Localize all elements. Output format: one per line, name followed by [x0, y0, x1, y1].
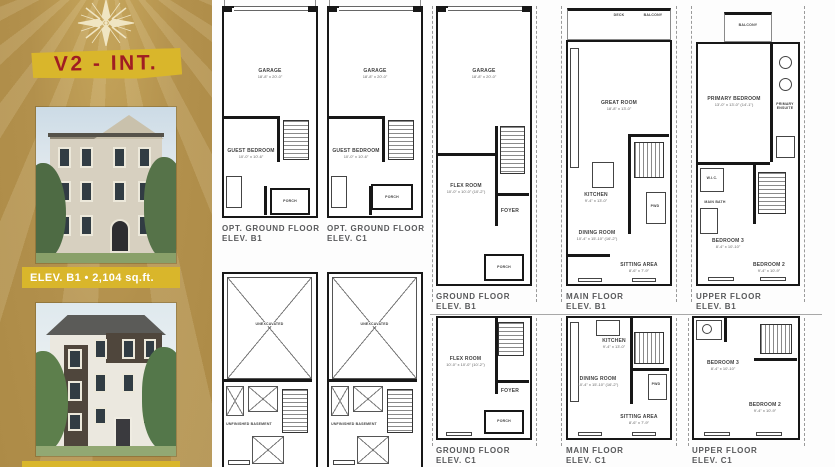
room-label-porch: PORCH	[272, 199, 308, 203]
plan-label-upper-c1: UPPER FLOORELEV. C1	[692, 446, 757, 467]
window-well	[333, 460, 355, 465]
room-label-bedroom-3: BEDROOM 38'-4" x 10'-10"	[702, 238, 754, 249]
room-label-dining-room: DINING ROOM10'-4" x 15'-10" (16'-2")	[568, 230, 626, 241]
lot-line	[688, 318, 689, 446]
tree	[144, 157, 176, 259]
stairs	[282, 389, 308, 433]
model-title-band: V2 - INT.	[30, 48, 182, 80]
plan-label-ground-b1: GROUND FLOORELEV. B1	[436, 292, 510, 313]
room-label-unexcavated: UNEXCAVATED	[227, 322, 312, 326]
room-label-unexcavated: UNEXCAVATED	[332, 322, 417, 326]
elevation-image-c1	[36, 303, 176, 456]
lot-line	[432, 318, 433, 446]
grass	[36, 446, 176, 456]
stairs	[387, 389, 413, 433]
elevation-caption-c1: ELEV. C1 • 2,104 sq.ft.	[22, 461, 180, 467]
plan-label-upper-b1: UPPER FLOORELEV. B1	[696, 292, 761, 313]
sink	[702, 324, 712, 334]
unexcavated-area	[227, 277, 312, 379]
lot-line	[432, 6, 433, 302]
powder-room	[648, 374, 667, 400]
starburst-logo-icon	[62, 0, 150, 46]
garage-door	[339, 6, 413, 11]
brochure-page: V2 - INT. ELEV. B1 • 2,104 sq.ft.	[0, 0, 835, 467]
elevation-caption-b1: ELEV. B1 • 2,104 sq.ft.	[22, 267, 180, 288]
floorplan-ground-b1: GARAGE18'-8" x 20'-0" FLEX ROOM10'-0" x …	[436, 6, 532, 286]
window	[578, 432, 602, 436]
stairs	[500, 126, 525, 174]
grass	[36, 253, 176, 263]
room-label-bedroom-2: BEDROOM 29'-4" x 10'-9"	[742, 262, 796, 273]
lot-line	[561, 6, 562, 302]
window	[632, 278, 656, 282]
floorplan-upper-b1: PRIMARY BEDROOM13'-0" x 13'-0" (14'-1") …	[696, 42, 800, 286]
window	[704, 432, 730, 436]
room-label-bedroom-2: BEDROOM 29'-4" x 10'-9"	[736, 402, 794, 413]
unexcavated-area	[252, 436, 284, 464]
stairs	[283, 120, 309, 160]
room-label-flex-room: FLEX ROOM10'-0" x 10'-0" (10'-2")	[438, 183, 494, 194]
room-label-balcony: BALCONY	[725, 23, 771, 27]
floorplan-upper-c1: BEDROOM 38'-4" x 10'-10" BEDROOM 29'-4" …	[692, 316, 800, 440]
sink	[779, 78, 792, 91]
room-label-porch: PORCH	[486, 265, 522, 269]
room-label-main-bath: MAIN BATH	[700, 200, 730, 204]
lot-line	[804, 6, 805, 302]
room-label-foyer: FOYER	[495, 388, 525, 394]
stairs	[388, 120, 414, 160]
stairs	[634, 142, 664, 178]
entry-door	[110, 219, 130, 253]
porch: PORCH	[484, 254, 524, 281]
lot-line	[676, 318, 677, 446]
lot-line	[691, 6, 692, 302]
roofline	[48, 133, 164, 137]
unexcavated-area	[353, 386, 383, 412]
room-label-guest-bedroom: GUEST BEDROOM10'-0" x 10'-6"	[329, 148, 383, 159]
floorplan-opt-ground-c1: GARAGE18'-8" x 20'-0" GUEST BEDROOM10'-0…	[327, 6, 423, 218]
page-cut-line	[430, 314, 822, 315]
room-label-garage: GARAGE18'-8" x 20'-0"	[329, 68, 421, 79]
garage-door	[448, 6, 522, 11]
porch: PORCH	[270, 188, 310, 215]
unexcavated-area	[226, 386, 244, 416]
lot-line	[561, 318, 562, 446]
elevation-image-b1	[36, 107, 176, 263]
window-well	[228, 460, 250, 465]
porch: PORCH	[371, 184, 413, 210]
rear-deck: DECK BALCONY	[567, 8, 671, 40]
plan-label-opt-ground-b1: OPT. GROUND FLOORELEV. B1	[222, 224, 320, 245]
unexcavated-area	[357, 436, 389, 464]
shower	[776, 136, 795, 158]
porch: PORCH	[484, 410, 524, 434]
room-label-pwd: PWD	[642, 204, 668, 208]
sidebar: V2 - INT. ELEV. B1 • 2,104 sq.ft.	[0, 0, 212, 467]
room-label-wic: W.I.C.	[700, 176, 724, 180]
entry-door	[114, 417, 132, 448]
room-label-garage: GARAGE18'-8" x 20'-0"	[224, 68, 316, 79]
floorplan-main-c1: KITCHEN9'-4" x 13'-0" PWD DINING ROOM10'…	[566, 316, 672, 440]
floorplan-basement-2: UNEXCAVATED UNFINISHED BASEMENT	[327, 272, 423, 467]
window	[446, 432, 472, 436]
stairs	[760, 324, 792, 354]
balcony: BALCONY	[724, 12, 772, 42]
room-label-guest-bedroom: GUEST BEDROOM10'-0" x 10'-6"	[224, 148, 278, 159]
floorplan-ground-c1: FLEX ROOM10'-0" x 10'-0" (10'-2") FOYER …	[436, 316, 532, 440]
window	[578, 278, 602, 282]
unexcavated-area	[332, 277, 417, 379]
room-label-great-room: GREAT ROOM18'-8" x 13'-0"	[568, 100, 670, 111]
unexcavated-area	[248, 386, 278, 412]
window	[708, 277, 734, 281]
plan-label-ground-c1: GROUND FLOORELEV. C1	[436, 446, 510, 467]
room-label-bedroom-3: BEDROOM 38'-4" x 10'-10"	[694, 360, 752, 371]
room-label-porch: PORCH	[486, 419, 522, 423]
kitchen-counter	[570, 322, 579, 402]
model-title: V2 - INT.	[54, 51, 159, 76]
room-label-flex-room: FLEX ROOM10'-0" x 10'-0" (10'-2")	[438, 356, 493, 367]
floorplan-opt-ground-b1: GARAGE18'-8" x 20'-0" GUEST BEDROOM10'-0…	[222, 6, 318, 218]
room-label-sitting-area: SITTING AREA8'-6" x 7'-9"	[610, 262, 668, 273]
bathroom-fixture	[331, 176, 347, 208]
room-label-foyer: FOYER	[495, 208, 525, 214]
room-label-unfinished-basement: UNFINISHED BASEMENT	[329, 422, 379, 426]
stairs	[758, 172, 786, 214]
floorplan-main-b1: GREAT ROOM18'-8" x 13'-0" KITCHEN9'-4" x…	[566, 40, 672, 286]
window	[760, 277, 786, 281]
sink	[779, 56, 792, 69]
kitchen-counter	[570, 48, 579, 168]
window	[632, 432, 656, 436]
room-label-pwd: PWD	[644, 382, 668, 386]
room-label-sitting-area: SITTING AREA8'-6" x 7'-9"	[610, 414, 668, 425]
stairs	[498, 322, 524, 356]
room-label-balcony: BALCONY	[638, 13, 668, 17]
bathroom-fixture	[226, 176, 242, 208]
kitchen-island	[596, 320, 620, 336]
bathtub	[700, 208, 718, 234]
room-label-unfinished-basement: UNFINISHED BASEMENT	[224, 422, 274, 426]
plan-label-opt-ground-c1: OPT. GROUND FLOORELEV. C1	[327, 224, 425, 245]
room-label-kitchen: KITCHEN9'-4" x 13'-0"	[570, 192, 622, 203]
lot-line	[536, 6, 537, 302]
stairs	[634, 332, 664, 364]
room-label-porch: PORCH	[373, 195, 411, 199]
plan-label-main-b1: MAIN FLOORELEV. B1	[566, 292, 624, 313]
garage-door	[234, 6, 308, 11]
room-label-dining-room: DINING ROOM10'-4" x 15'-10" (16'-2")	[570, 376, 626, 387]
floorplan-basement-1: UNEXCAVATED UNFINISHED BASEMENT	[222, 272, 318, 467]
lot-line	[676, 6, 677, 302]
room-label-primary-bedroom: PRIMARY BEDROOM13'-0" x 13'-0" (14'-1")	[698, 96, 770, 107]
plan-label-main-c1: MAIN FLOORELEV. C1	[566, 446, 624, 467]
room-label-garage: GARAGE18'-8" x 20'-0"	[438, 68, 530, 79]
lot-line	[804, 318, 805, 446]
window	[756, 432, 782, 436]
kitchen-island	[592, 162, 614, 188]
lot-line	[536, 318, 537, 446]
unexcavated-area	[331, 386, 349, 416]
room-label-primary-ensuite: PRIMARY ENSUITE	[773, 102, 797, 111]
room-label-kitchen: KITCHEN9'-4" x 13'-0"	[594, 338, 634, 349]
